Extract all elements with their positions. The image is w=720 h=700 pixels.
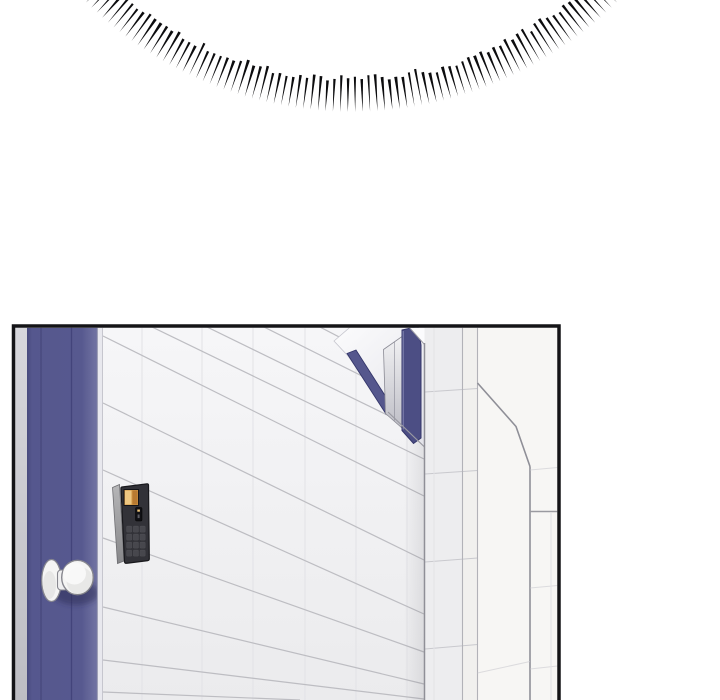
keypad-key <box>127 526 132 532</box>
keypad-key <box>133 526 138 532</box>
comic-panel <box>14 326 560 700</box>
speed-line-stroke <box>281 76 288 106</box>
comic-page <box>0 0 720 700</box>
speed-line-stroke <box>441 66 451 98</box>
speed-line-stroke <box>318 76 322 111</box>
speed-line-stroke <box>325 80 329 111</box>
keypad-key <box>140 550 145 556</box>
window-frame-right <box>402 327 421 444</box>
keypad-key <box>133 542 138 548</box>
side-face-b <box>463 328 478 700</box>
speed-line-stroke <box>274 73 282 104</box>
speed-line-stroke <box>511 39 528 68</box>
speed-line-stroke <box>311 75 316 110</box>
keypad-screen-glow <box>125 491 132 505</box>
keypad-key <box>140 542 145 548</box>
speed-line-stroke <box>428 72 436 102</box>
speed-line-stroke <box>586 0 612 8</box>
speed-line-stroke <box>374 74 378 111</box>
speed-line-stroke <box>360 79 363 112</box>
side-face-a <box>425 328 463 700</box>
speed-line-stroke <box>119 8 138 32</box>
speed-line-stroke <box>266 73 274 102</box>
speed-line-stroke <box>394 77 400 109</box>
speed-line-stroke <box>156 30 173 57</box>
speed-line-stroke <box>131 14 151 42</box>
door-jamb-strip <box>15 328 27 700</box>
speed-line-stroke <box>421 72 429 104</box>
speed-line-stroke <box>296 75 302 108</box>
speed-line-stroke <box>530 31 547 58</box>
speed-line-stroke <box>559 12 578 37</box>
speed-line-stroke <box>333 79 336 112</box>
speed-line-stroke <box>144 22 163 49</box>
speed-line-stroke <box>169 38 184 65</box>
speed-line-stroke <box>586 0 607 13</box>
speed-line-stroke <box>455 65 465 94</box>
keypad-key <box>133 550 138 556</box>
speed-line-stroke <box>367 75 370 111</box>
keypad-slot-detail <box>138 515 140 519</box>
keypad-key <box>127 550 132 556</box>
speed-line-stroke <box>492 47 507 79</box>
speed-line-stroke <box>340 75 342 112</box>
speed-line-stroke <box>303 78 308 109</box>
speed-line-stroke <box>499 45 514 75</box>
speed-line-stroke <box>436 72 444 100</box>
speed-line-stroke <box>114 3 134 27</box>
knob-rose-shading <box>43 571 56 599</box>
door <box>27 328 99 700</box>
keypad-led <box>137 510 140 512</box>
speed-line-stroke <box>503 39 520 72</box>
speed-line-stroke <box>196 51 209 79</box>
speed-line-stroke <box>552 15 571 41</box>
speed-line-stroke <box>546 17 566 45</box>
speed-line-stroke <box>487 52 501 82</box>
speed-line-stroke <box>414 69 422 106</box>
speed-line-stroke <box>288 77 294 107</box>
speed-line-stroke <box>150 26 168 54</box>
door-leaf <box>27 328 97 700</box>
keypad-key <box>140 526 145 532</box>
comic-page-canvas <box>0 0 720 700</box>
speed-line-stroke <box>479 51 493 84</box>
speed-line-stroke <box>347 78 350 112</box>
keypad-key <box>140 534 145 540</box>
keypad-lock <box>113 484 150 564</box>
knob-highlight <box>63 563 86 585</box>
keypad-key <box>133 534 138 540</box>
far-wall-face <box>478 328 558 700</box>
door-frame-edge <box>97 328 103 700</box>
speed-line-stroke <box>259 66 269 101</box>
window-glass <box>384 337 403 429</box>
keypad-key <box>127 534 132 540</box>
speed-line-stroke <box>125 12 144 37</box>
speed-line-stroke <box>568 1 590 27</box>
speed-line-stroke <box>516 33 534 65</box>
speed-line-stroke <box>163 31 181 61</box>
keypad-key <box>127 542 132 548</box>
speed-line-stroke <box>533 23 553 54</box>
right-wall-faces <box>425 328 558 700</box>
keypad-screen-dark <box>133 491 138 505</box>
speed-line-stroke <box>182 45 196 72</box>
speed-line-stroke <box>401 77 407 108</box>
speed-line-stroke <box>354 77 356 112</box>
speed-line-stroke <box>189 43 205 75</box>
speed-lines-burst-icon <box>86 0 617 112</box>
speed-line-stroke <box>138 18 157 45</box>
speed-line-stroke <box>408 72 415 107</box>
speed-line-stroke <box>381 77 385 111</box>
speed-line-stroke <box>176 42 191 69</box>
speed-line-stroke <box>388 79 393 110</box>
